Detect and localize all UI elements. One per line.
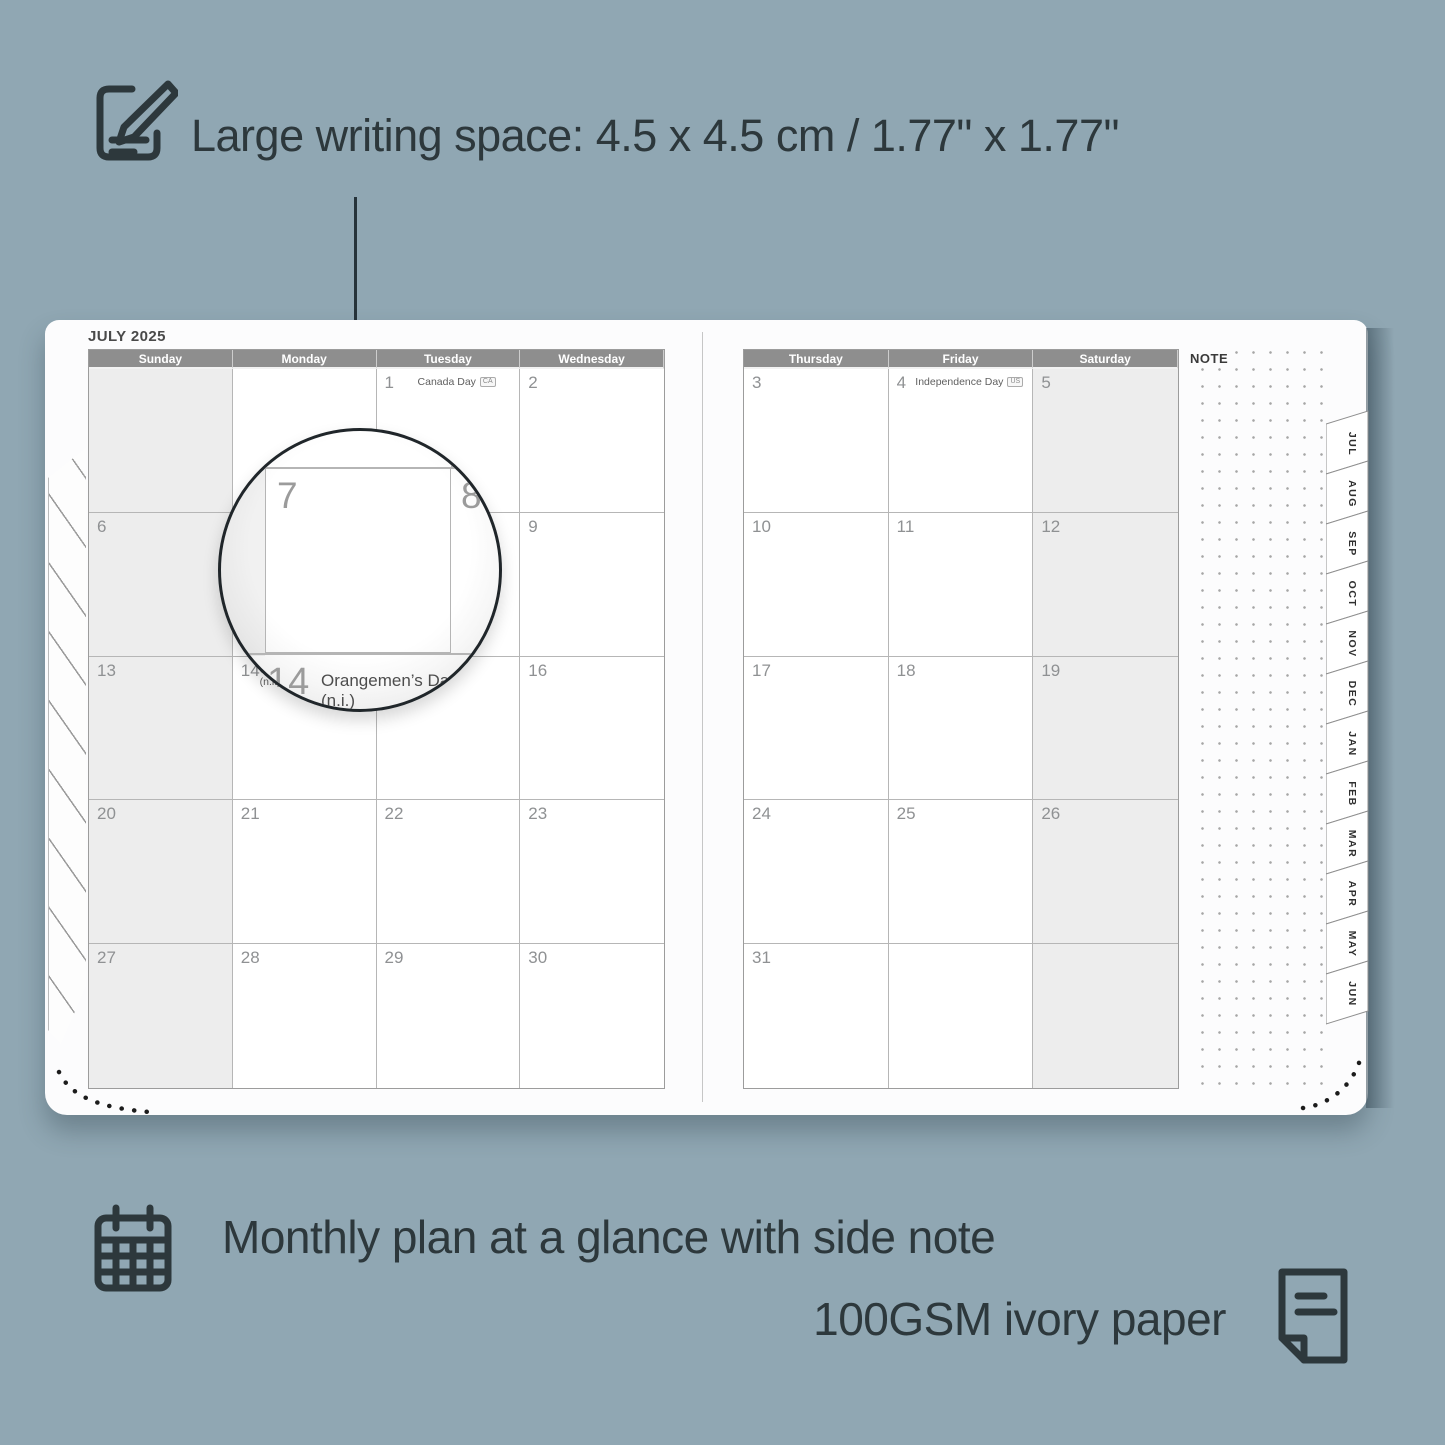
calendar-cell: 22: [377, 800, 521, 944]
calendar-cell: 16: [520, 657, 664, 801]
calendar-cell: 31: [744, 944, 889, 1088]
date-number: 19: [1041, 662, 1060, 679]
calendar-cell: 23: [520, 800, 664, 944]
holiday: Canada DayCA: [418, 376, 496, 388]
note-pencil-icon: [86, 76, 178, 170]
month-tabs: JULAUGSEPOCTNOVDECJANFEBMARAPRMAYJUN: [1326, 349, 1369, 1089]
calendar-cell: 21: [233, 800, 377, 944]
bottom-caption-2: 100GSM ivory paper: [0, 1292, 1226, 1346]
calendar-cell: 12: [1033, 513, 1178, 657]
month-tab-label: MAY: [1346, 931, 1358, 958]
calendar-cell: 30: [520, 944, 664, 1088]
month-title: JULY 2025: [88, 328, 166, 345]
note-label: NOTE: [1190, 349, 1234, 368]
calendar-cell: [89, 369, 233, 513]
bottom-caption-1: Monthly plan at a glance with side note: [222, 1210, 995, 1264]
holiday-name: Independence Day: [915, 376, 1003, 388]
calendar-cell: [889, 944, 1034, 1088]
magnified-day-8: 8: [461, 475, 482, 517]
date-number: 11: [897, 518, 915, 535]
magnifier-lens: 7 8 14 Orangemen’s Day (n.i.) UK: [218, 428, 502, 712]
day-header: Tuesday: [377, 350, 521, 369]
month-tab-label: NOV: [1346, 630, 1358, 657]
date-number: 5: [1041, 374, 1050, 391]
date-number: 12: [1041, 518, 1060, 535]
calendar-cell: 26: [1033, 800, 1178, 944]
month-tab-label: SEP: [1346, 531, 1358, 557]
holiday: Independence DayUS: [915, 376, 1023, 388]
calendar-cell: 3: [744, 369, 889, 513]
magnified-row-line-bottom: [221, 653, 499, 655]
date-number: 29: [385, 949, 404, 966]
calendar-cell: [1033, 944, 1178, 1088]
calendar-cell: 2: [520, 369, 664, 513]
month-tab-label: JAN: [1346, 731, 1358, 757]
calendar-cell: 9: [520, 513, 664, 657]
calendar-grid-right: ThursdayFridaySaturday34Independence Day…: [743, 349, 1179, 1089]
day-header: Wednesday: [520, 350, 664, 369]
calendar-cell: 4Independence DayUS: [889, 369, 1034, 513]
stitch-dots-right: [1297, 1052, 1377, 1114]
note-dot-grid: NOTE: [1188, 349, 1326, 1087]
date-number: 18: [897, 662, 916, 679]
calendar-cell: 25: [889, 800, 1034, 944]
calendar-cell: 19: [1033, 657, 1178, 801]
month-tab-label: DEC: [1346, 681, 1358, 708]
spine-divider: [702, 332, 703, 1102]
date-number: 24: [752, 805, 771, 822]
month-tab-label: AUG: [1346, 480, 1358, 508]
date-number: 17: [752, 662, 771, 679]
date-number: 10: [752, 518, 771, 535]
flag-tag: CA: [480, 377, 496, 387]
day-header: Sunday: [89, 350, 233, 369]
page-edge-hatching: [48, 446, 86, 1044]
magnified-weekend-shading: [221, 468, 265, 656]
calendar-cell: 20: [89, 800, 233, 944]
calendar-cell: 6: [89, 513, 233, 657]
month-tab-label: APR: [1346, 881, 1358, 908]
date-number: 2: [528, 374, 537, 391]
month-tab-label: FEB: [1346, 781, 1358, 807]
date-number: 13: [97, 662, 116, 679]
date-number: 22: [385, 805, 404, 822]
date-number: 23: [528, 805, 547, 822]
calendar-grid-icon: [86, 1202, 180, 1296]
uk-flag-tag: UK: [473, 684, 499, 699]
day-header: Monday: [233, 350, 377, 369]
planner-spread: JULY 2025 SundayMondayTuesdayWednesday1C…: [45, 320, 1368, 1115]
month-tab-label: JUL: [1346, 432, 1358, 456]
calendar-cell: 29: [377, 944, 521, 1088]
date-number: 25: [897, 805, 916, 822]
calendar-cell: 24: [744, 800, 889, 944]
paper-fold-icon: [1272, 1264, 1354, 1368]
date-number: 26: [1041, 805, 1060, 822]
date-number: 21: [241, 805, 260, 822]
magnified-holiday: Orangemen’s Day (n.i.) UK: [321, 671, 499, 711]
calendar-cell: 10: [744, 513, 889, 657]
date-number: 27: [97, 949, 116, 966]
date-number: 9: [528, 518, 537, 535]
page-edge-shadow: [1366, 328, 1394, 1108]
month-tab-label: MAR: [1346, 830, 1358, 858]
magnified-holiday-name: Orangemen’s Day (n.i.): [321, 671, 467, 711]
flag-tag: US: [1007, 377, 1023, 387]
calendar-cell: 18: [889, 657, 1034, 801]
stitch-dots-left: [53, 1068, 157, 1120]
magnified-day-7: 7: [277, 475, 298, 517]
day-header: Saturday: [1033, 350, 1178, 369]
calendar-cell: 5: [1033, 369, 1178, 513]
top-caption: Large writing space: 4.5 x 4.5 cm / 1.77…: [191, 110, 1119, 162]
date-number: 20: [97, 805, 116, 822]
calendar-cell: 27: [89, 944, 233, 1088]
calendar-cell: 17: [744, 657, 889, 801]
magnified-day-14: 14: [267, 661, 309, 704]
day-header: Friday: [889, 350, 1034, 369]
date-number: 28: [241, 949, 260, 966]
magnified-column-line: [451, 431, 453, 467]
date-number: 31: [752, 949, 771, 966]
month-tab-label: JUN: [1346, 981, 1358, 1007]
calendar-cell: 13: [89, 657, 233, 801]
calendar-cell: 28: [233, 944, 377, 1088]
date-number: 4: [897, 374, 906, 391]
date-number: 30: [528, 949, 547, 966]
date-number: 6: [97, 518, 106, 535]
day-header: Thursday: [744, 350, 889, 369]
date-number: 1: [385, 374, 394, 391]
holiday-name: Canada Day: [418, 376, 476, 388]
date-number: 16: [528, 662, 547, 679]
date-number: 3: [752, 374, 761, 391]
month-tab-label: OCT: [1346, 581, 1358, 608]
calendar-cell: 11: [889, 513, 1034, 657]
